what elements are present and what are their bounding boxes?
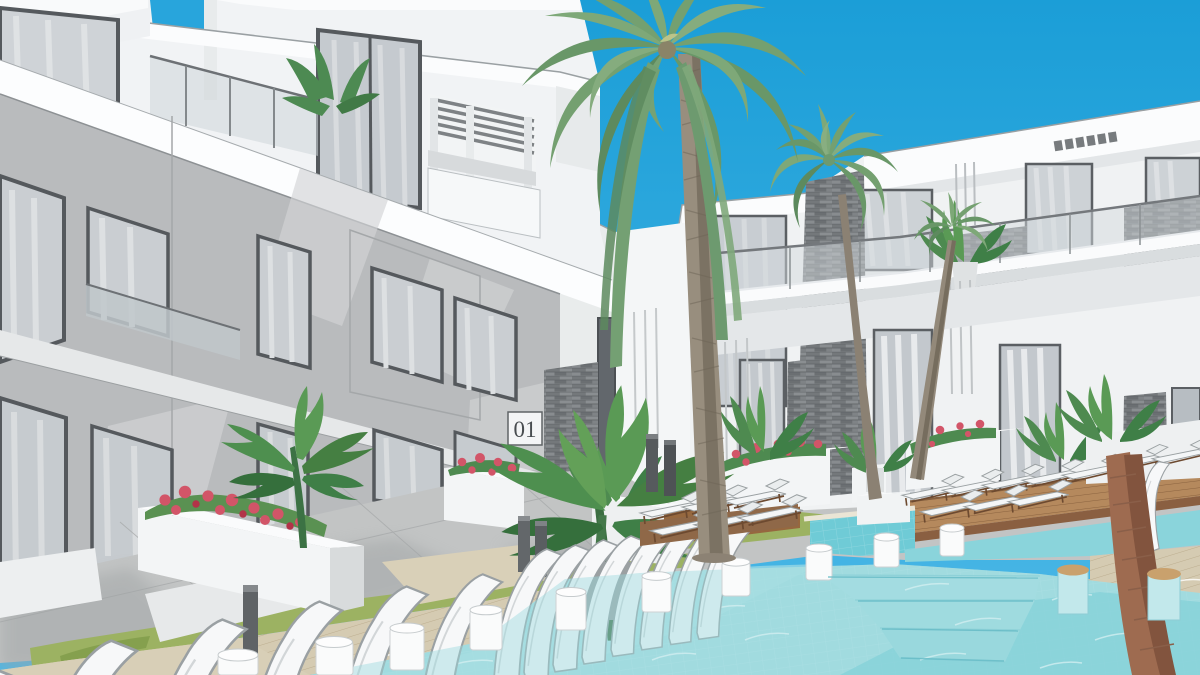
svg-text:01: 01 [514,417,537,442]
